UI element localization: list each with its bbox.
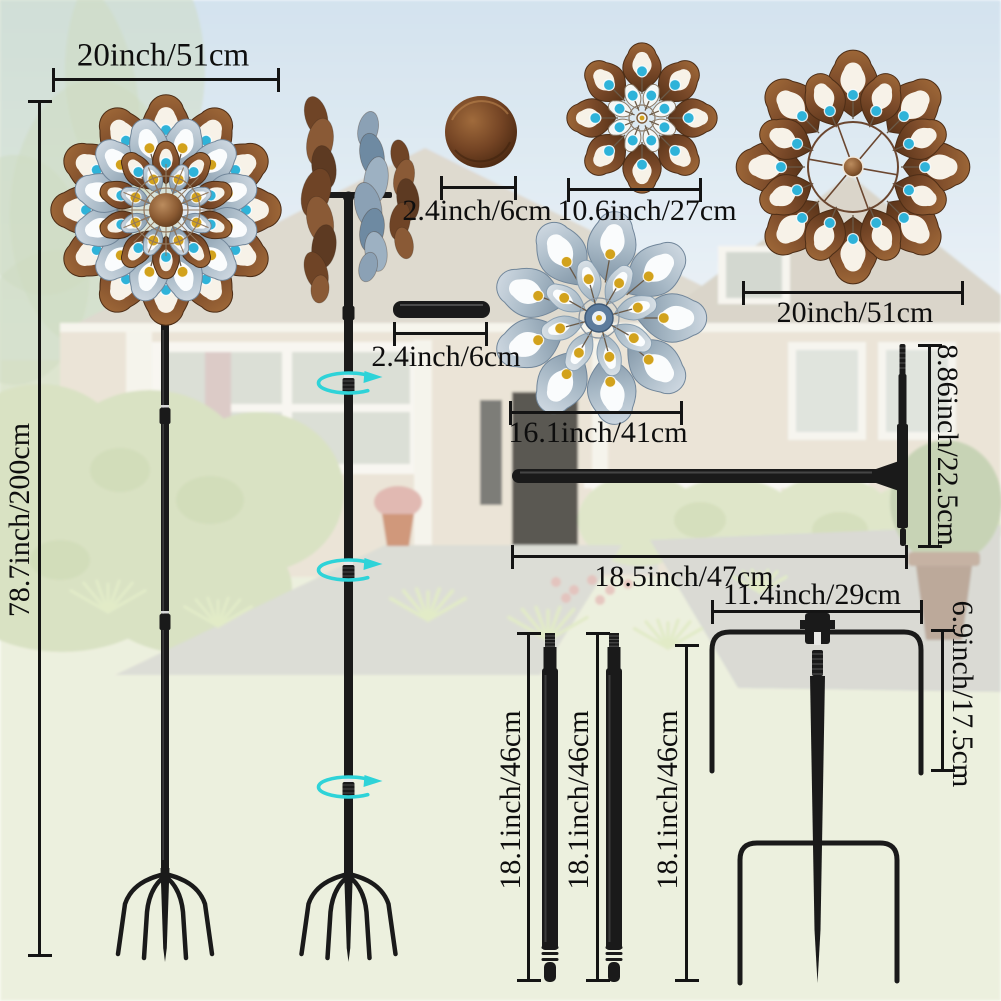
small-flower — [567, 43, 717, 193]
label-spinner-width: 20inch/51cm — [77, 40, 249, 73]
dim-line-large-flower — [742, 291, 964, 294]
dim-line-blue-flower — [509, 411, 683, 414]
label-cap-diameter: 2.4inch/6cm — [402, 196, 551, 226]
dim-line-total-height — [38, 100, 41, 957]
label-stake-width: 11.4inch/29cm — [723, 580, 901, 610]
extension-pole — [542, 633, 559, 982]
dim-line-spinner-width — [52, 78, 280, 81]
label-pole-3: 18.1inch/46cm — [653, 710, 683, 889]
label-stake-prong-height: 6.9inch/17.5cm — [947, 601, 977, 788]
extension-pole — [606, 633, 623, 982]
product-diagram: 20inch/51cm 78.7inch/200cm 2.4inch/6cm 1… — [0, 0, 1001, 1001]
label-large-flower: 20inch/51cm — [777, 298, 934, 328]
dim-line-pole-1 — [527, 632, 530, 982]
connector-tube — [393, 301, 490, 318]
top-cap — [445, 96, 517, 168]
dim-line-connector-tube — [393, 332, 488, 335]
dim-line-small-flower — [567, 188, 702, 191]
label-pole-1: 18.1inch/46cm — [496, 710, 526, 889]
dim-line-pole-2 — [596, 632, 599, 982]
large-flower — [736, 50, 970, 284]
label-connector-tube: 2.4inch/6cm — [371, 342, 520, 372]
label-pole-2: 18.1inch/46cm — [564, 710, 594, 889]
label-blue-flower: 16.1inch/41cm — [508, 418, 687, 448]
dim-line-pole-3 — [685, 644, 688, 982]
dim-line-cap-diameter — [440, 186, 517, 189]
label-small-flower: 10.6inch/27cm — [557, 196, 736, 226]
label-total-height: 78.7inch/200cm — [5, 423, 35, 617]
label-crossbar-height: 8.86inch/22.5cm — [932, 344, 962, 546]
dim-line-crossbar-length — [511, 555, 908, 558]
dim-line-stake-prong-height — [941, 629, 944, 772]
